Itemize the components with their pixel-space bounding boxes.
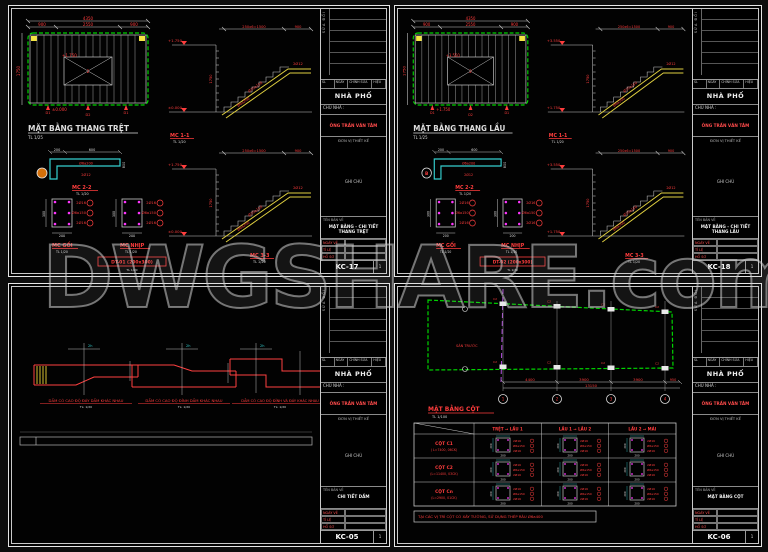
drawing-name-label: TÊN BẢN VẼ bbox=[323, 488, 384, 492]
foot-date-label: NGÀY VẼ bbox=[321, 239, 345, 246]
owner-name: ÔNG TRẦN VĂN TÂM bbox=[321, 393, 386, 415]
page-number: 1 bbox=[745, 261, 758, 273]
beam1-caption: DẦM CÓ CAO ĐỘ ĐÁY DẦM KHÁC NHAU bbox=[49, 398, 124, 403]
table-header-2: LẦU 1 → LẦU 2 bbox=[559, 427, 591, 432]
tr-mc22-bar1: Ø6a200 bbox=[462, 160, 475, 165]
svg-text:C2: C2 bbox=[547, 300, 551, 304]
tl-mc-nhip-caption: MC NHỊP bbox=[120, 243, 145, 249]
plan-dim-1: 4400 bbox=[525, 377, 535, 382]
tl-mc11-caption: MC 1-1 bbox=[170, 133, 190, 139]
area-label: SÂN TRƯỚC bbox=[456, 343, 478, 348]
tl-mc22-detail: 200 600 800 Ø6a200 2Ø12 MC 2-2 TL 1/20 bbox=[37, 148, 126, 196]
tl-mc22-dim3: 800 bbox=[122, 162, 126, 168]
design-unit-label: ĐƠN VỊ THIẾT KẾ bbox=[321, 139, 386, 143]
drawing-name-label: TÊN BẢN VẼ bbox=[323, 218, 384, 222]
row3-name: CỘT Cn bbox=[435, 488, 453, 495]
rev-col-hieu: HIỆU bbox=[744, 80, 758, 88]
tl-mc22-caption: MC 2-2 bbox=[72, 185, 92, 191]
foot-date-label: NGÀY VẼ bbox=[693, 509, 717, 516]
tl-plan-level-bot: ±0.000 bbox=[52, 107, 67, 112]
tl-mc22-dim1: 200 bbox=[54, 148, 60, 152]
beam3-hatch-label: 2h bbox=[260, 344, 264, 348]
tl-grid-bubble bbox=[37, 168, 47, 178]
tr-mc11-scale: TL 1/20 bbox=[551, 140, 564, 144]
tl-mc11-level-top: +1.750 bbox=[168, 38, 183, 43]
rev-col-sl: SL bbox=[693, 358, 707, 366]
row1-spec: ( L=7400, 06CK) bbox=[431, 448, 457, 452]
drawing-name-box: TÊN BẢN VẼ MẶT BẰNG - CHI TIẾT THANG TRỆ… bbox=[321, 217, 386, 239]
page-number: 1 bbox=[373, 261, 386, 273]
rev-col-ngay: NGÀY bbox=[707, 80, 721, 88]
tl-mc22-dim2: 600 bbox=[89, 148, 95, 152]
sheet-column-plan: C2 C2 C2 C2 C2 C2 C2 C2 SÂN TRƯỚC 4400 3… bbox=[394, 283, 762, 547]
foot-file-label: HỒ SƠ bbox=[693, 253, 717, 260]
tl-mc22-scale: TL 1/20 bbox=[75, 192, 89, 196]
tr-grid-bubble-letter: B bbox=[425, 171, 429, 177]
br-title-block: SỬA ĐỔI SL NGÀY CHỈNH SỬA HIỆU NHÀ PHỐ C… bbox=[692, 287, 758, 543]
plan-dim-total: 13150 bbox=[585, 383, 598, 388]
rev-col-sl: SL bbox=[321, 358, 335, 366]
tr-plan-level-bot: +1.750 bbox=[436, 107, 451, 112]
beam-detail-3: 2h DẦM CÓ CAO ĐỘ ĐỈNH VÀ ĐÁY KHÁC NHAU T… bbox=[230, 343, 320, 409]
design-unit-box: ĐƠN VỊ THIẾT KẾ GHI CHÚ bbox=[321, 137, 386, 217]
rev-col-ngay: NGÀY bbox=[335, 80, 349, 88]
svg-text:C2: C2 bbox=[493, 360, 497, 364]
tr-mc22-dim2: 600 bbox=[471, 148, 477, 152]
sheet-number: KC-17 bbox=[321, 263, 373, 271]
svg-text:1: 1 bbox=[502, 397, 505, 402]
revision-side-label: SỬA ĐỔI bbox=[322, 11, 326, 33]
svg-text:2: 2 bbox=[556, 397, 559, 402]
br-plan-scale: TL 1/100 bbox=[431, 415, 447, 419]
sheet-number: KC-05 bbox=[321, 533, 373, 541]
beam3-scale: TL: 1/20 bbox=[273, 405, 286, 409]
page-number: 1 bbox=[373, 531, 386, 543]
notes-label: GHI CHÚ bbox=[693, 454, 758, 459]
beam3-caption: DẦM CÓ CAO ĐỘ ĐỈNH VÀ ĐÁY KHÁC NHAU bbox=[241, 398, 319, 403]
drawing-name: MẶT BẰNG - CHI TIẾT THANG LẦU bbox=[695, 224, 756, 234]
br-drawing-area: C2 C2 C2 C2 C2 C2 C2 C2 SÂN TRƯỚC 4400 3… bbox=[398, 287, 692, 543]
project-name: NHÀ PHỐ bbox=[321, 89, 386, 105]
sheet-stair-ground: +1.750 ±0.000 MẶT BẰNG THANG TRỆT TL 1/2… bbox=[8, 5, 390, 277]
rev-col-sl: SL bbox=[693, 80, 707, 88]
rev-col-chinhsua: CHỈNH SỬA bbox=[348, 358, 372, 366]
tl-mc22-bar2: 2Ø12 bbox=[81, 172, 90, 177]
tl-mc33-level-bot: ±0.000 bbox=[168, 229, 183, 234]
svg-text:C2: C2 bbox=[547, 361, 551, 365]
tr-title-block: SỬA ĐỔI SL NGÀY CHỈNH SỬA HIỆU NHÀ PHỐ C… bbox=[692, 9, 758, 273]
sheet-beam-details: 2h DẦM CÓ CAO ĐỘ ĐÁY DẦM KHÁC NHAU TL: 1… bbox=[8, 283, 390, 547]
rev-col-chinhsua: CHỈNH SỬA bbox=[720, 80, 744, 88]
tr-mc11-level-bot: +1.750 bbox=[547, 106, 561, 110]
revision-side-label: SỬA ĐỔI bbox=[694, 11, 698, 33]
foot-scale-label: TỈ LỆ bbox=[693, 246, 717, 253]
tr-plan-title: MẶT BẰNG THANG LẦU bbox=[413, 123, 505, 133]
beam2-hatch-label: 2h bbox=[186, 344, 190, 348]
row2-spec: (L=11400, 03CK) bbox=[430, 472, 457, 476]
tl-plan-scale: TL 1/25 bbox=[27, 135, 43, 140]
tr-mc-nhip-scale: TL 1/20 bbox=[505, 250, 517, 254]
beam-detail-1: 2h DẦM CÓ CAO ĐỘ ĐÁY DẦM KHÁC NHAU TL: 1… bbox=[34, 343, 138, 409]
wall-rebar-note: TẠI CÁC VỊ TRÍ CỘT CÓ XÂY TƯỜNG, SỬ DỤNG… bbox=[417, 514, 543, 519]
tr-dt-label: DT-02 (200x300) bbox=[493, 259, 533, 265]
notes-label: GHI CHÚ bbox=[321, 180, 386, 185]
tr-mc22-dim1: 200 bbox=[438, 148, 444, 152]
tl-mc33-caption: MC 3-3 bbox=[250, 253, 270, 259]
footer-box: NGÀY VẼ TỈ LỆ HỒ SƠ KC-17 1 bbox=[321, 239, 386, 273]
tr-mc22-bar2: 2Ø12 bbox=[464, 172, 473, 177]
tl-mc-nhip-scale: TL 1/20 bbox=[124, 250, 137, 254]
rev-col-hieu: HIỆU bbox=[744, 358, 758, 366]
small-marker-top bbox=[463, 307, 468, 312]
row3-spec: (L=2900, 01CK) bbox=[431, 496, 456, 500]
tl-dt-sub: TL 1/20 bbox=[125, 268, 137, 272]
tr-mc-nhip-caption: MC NHỊP bbox=[501, 243, 525, 249]
beam2-caption: DẦM CÓ CAO ĐỘ ĐỈNH DẦM KHÁC NHAU bbox=[145, 398, 222, 403]
svg-text:C2: C2 bbox=[493, 297, 497, 301]
tl-plan-title: MẶT BẰNG THANG TRỆT bbox=[28, 123, 130, 133]
foot-scale-label: TỈ LỆ bbox=[321, 246, 345, 253]
design-unit-label: ĐƠN VỊ THIẾT KẾ bbox=[693, 417, 758, 421]
drawing-name: CHI TIẾT DẦM bbox=[323, 494, 384, 499]
tr-drawing-area: +3.550 +1.750 MẶT BẰNG THANG LẦU TL 1/25… bbox=[398, 9, 692, 273]
design-unit-label: ĐƠN VỊ THIẾT KẾ bbox=[321, 417, 386, 421]
foot-file-label: HỒ SƠ bbox=[693, 523, 717, 530]
svg-text:3: 3 bbox=[610, 397, 613, 402]
drawing-name: MẶT BẰNG CỘT bbox=[695, 494, 756, 499]
sheet-number: KC-18 bbox=[693, 263, 745, 271]
svg-text:C2: C2 bbox=[601, 361, 605, 365]
tr-mc-goi-caption: MC GỐI bbox=[436, 241, 456, 249]
bl-drawing-area: 2h DẦM CÓ CAO ĐỘ ĐÁY DẦM KHÁC NHAU TL: 1… bbox=[12, 287, 320, 543]
sheet-number: KC-06 bbox=[693, 533, 745, 541]
row1-name: CỘT C1 bbox=[435, 440, 453, 447]
svg-text:C2: C2 bbox=[655, 305, 659, 309]
table-header-3: LẦU 2 → MÁI bbox=[628, 427, 656, 432]
beam-detail-2: 2h DẦM CÓ CAO ĐỘ ĐỈNH DẦM KHÁC NHAU TL: … bbox=[132, 343, 236, 409]
tl-mc11-scale: TL 1/20 bbox=[172, 140, 186, 144]
revision-side-label: SỬA ĐỔI bbox=[694, 289, 698, 311]
notes-label: GHI CHÚ bbox=[693, 180, 758, 185]
br-plan-title: MẶT BẰNG CỘT bbox=[428, 405, 481, 413]
plan-dim-2: 3900 bbox=[579, 377, 589, 382]
drawing-name-label: TÊN BẢN VẼ bbox=[695, 488, 756, 492]
sheet-stair-upper: +3.550 +1.750 MẶT BẰNG THANG LẦU TL 1/25… bbox=[394, 5, 762, 277]
beam1-hatch-label: 2h bbox=[88, 344, 92, 348]
rev-col-hieu: HIỆU bbox=[372, 358, 386, 366]
tr-dt-sub: TL 1/20 bbox=[506, 268, 518, 272]
project-name: NHÀ PHỐ bbox=[693, 367, 758, 383]
tr-mc22-dim3: 800 bbox=[503, 162, 507, 168]
bl-title-block: SỬA ĐỔI SL NGÀY CHỈNH SỬA HIỆU NHÀ PHỐ C… bbox=[320, 287, 386, 543]
owner-label: CHỦ NHÀ : bbox=[323, 383, 344, 388]
plan-dim-4: 950 bbox=[670, 378, 676, 382]
svg-text:4: 4 bbox=[664, 397, 667, 402]
tr-mc22-scale: TL 1/20 bbox=[458, 192, 471, 196]
owner-name: ÔNG TRẦN VĂN TÂM bbox=[693, 393, 758, 415]
plan-boundary-dashed bbox=[428, 300, 673, 370]
foot-date-label: NGÀY VẼ bbox=[693, 239, 717, 246]
tr-mc22-detail: 200 600 800 Ø6a200 2Ø12 B MC 2-2 TL 1/20 bbox=[422, 148, 507, 196]
tr-mc11-level-top: +3.550 bbox=[547, 39, 561, 43]
tr-mc33-caption: MC 3-3 bbox=[625, 253, 643, 259]
notes-label: GHI CHÚ bbox=[321, 454, 386, 459]
drawing-name: MẶT BẰNG - CHI TIẾT THANG TRỆT bbox=[323, 224, 384, 234]
project-name: NHÀ PHỐ bbox=[321, 367, 386, 383]
beam2-scale: TL: 1/20 bbox=[177, 405, 190, 409]
tr-mc11-caption: MC 1-1 bbox=[549, 133, 568, 139]
svg-text:C2: C2 bbox=[601, 303, 605, 307]
tr-mc33-level-bot: +1.750 bbox=[547, 230, 561, 234]
cad-preview-page: 4350 900 2550 900 1750 2 D1 D2 D1 bbox=[0, 0, 768, 552]
foot-scale-label: TỈ LỆ bbox=[321, 516, 345, 523]
foot-file-label: HỒ SƠ bbox=[321, 523, 345, 530]
plan-dim-3: 3900 bbox=[633, 377, 643, 382]
foot-date-label: NGÀY VẼ bbox=[321, 509, 345, 516]
rev-col-chinhsua: CHỈNH SỬA bbox=[348, 80, 372, 88]
tl-mc-goi-scale: TL 1/20 bbox=[55, 250, 68, 254]
tr-mc33-scale: TL 1/20 bbox=[627, 260, 640, 264]
foot-file-label: HỒ SƠ bbox=[321, 253, 345, 260]
column-schedule-table: TRỆT → LẦU 1 LẦU 1 → LẦU 2 LẦU 2 → MÁI C… bbox=[414, 423, 676, 522]
tr-mc22-caption: MC 2-2 bbox=[455, 185, 473, 191]
rev-col-hieu: HIỆU bbox=[372, 80, 386, 88]
rev-col-ngay: NGÀY bbox=[707, 358, 721, 366]
rev-col-chinhsua: CHỈNH SỬA bbox=[720, 358, 744, 366]
tr-mc33-level-top: +3.550 bbox=[547, 163, 561, 167]
tl-mc-goi-caption: MC GỐI bbox=[52, 241, 73, 249]
tr-plan-level-top: +3.550 bbox=[446, 53, 461, 58]
beam1-scale: TL: 1/20 bbox=[79, 405, 92, 409]
tl-mc33-scale: TL 1/20 bbox=[252, 260, 266, 264]
column-tags: C2 C2 C2 C2 C2 C2 C2 C2 bbox=[493, 297, 659, 366]
row2-name: CỘT C2 bbox=[435, 464, 453, 471]
tr-mc-goi-scale: TL 1/20 bbox=[439, 250, 451, 254]
design-unit-label: ĐƠN VỊ THIẾT KẾ bbox=[693, 139, 758, 143]
page-number: 1 bbox=[745, 531, 758, 543]
rev-col-sl: SL bbox=[321, 80, 335, 88]
schedule-strip bbox=[20, 437, 312, 445]
tl-mc22-bar1: Ø6a200 bbox=[79, 161, 93, 166]
tl-title-block: SỬA ĐỔI SL NGÀY CHỈNH SỬA HIỆU NHÀ PHỐ C… bbox=[320, 9, 386, 273]
project-name: NHÀ PHỐ bbox=[693, 89, 758, 105]
owner-name: ÔNG TRẦN VĂN TÂM bbox=[693, 115, 758, 137]
tl-mc11-level-bot: ±0.000 bbox=[168, 105, 183, 110]
tl-dt-label: DT-01 (200x300) bbox=[111, 260, 153, 266]
svg-text:C2: C2 bbox=[655, 362, 659, 366]
tr-plan-scale: TL 1/25 bbox=[412, 135, 428, 140]
small-marker-bottom bbox=[463, 367, 468, 372]
owner-label: CHỦ NHÀ : bbox=[695, 105, 716, 110]
tl-drawing-area: +1.750 ±0.000 MẶT BẰNG THANG TRỆT TL 1/2… bbox=[12, 9, 320, 273]
rev-col-ngay: NGÀY bbox=[335, 358, 349, 366]
table-header-1: TRỆT → LẦU 1 bbox=[492, 427, 523, 432]
owner-name: ÔNG TRẦN VĂN TÂM bbox=[321, 115, 386, 137]
grid-bubbles: 1 2 3 4 bbox=[499, 395, 670, 404]
revision-side-label: SỬA ĐỔI bbox=[322, 289, 326, 311]
owner-label: CHỦ NHÀ : bbox=[323, 105, 344, 110]
column-markers bbox=[500, 302, 669, 371]
drawing-name-label: TÊN BẢN VẼ bbox=[695, 218, 756, 222]
revision-box: SỬA ĐỔI SL NGÀY CHỈNH SỬA HIỆU bbox=[321, 9, 386, 89]
tl-mc33-level-top: +1.750 bbox=[168, 162, 183, 167]
owner-label: CHỦ NHÀ : bbox=[695, 383, 716, 388]
foot-scale-label: TỈ LỆ bbox=[693, 516, 717, 523]
tl-plan-level-top: +1.750 bbox=[62, 53, 77, 58]
